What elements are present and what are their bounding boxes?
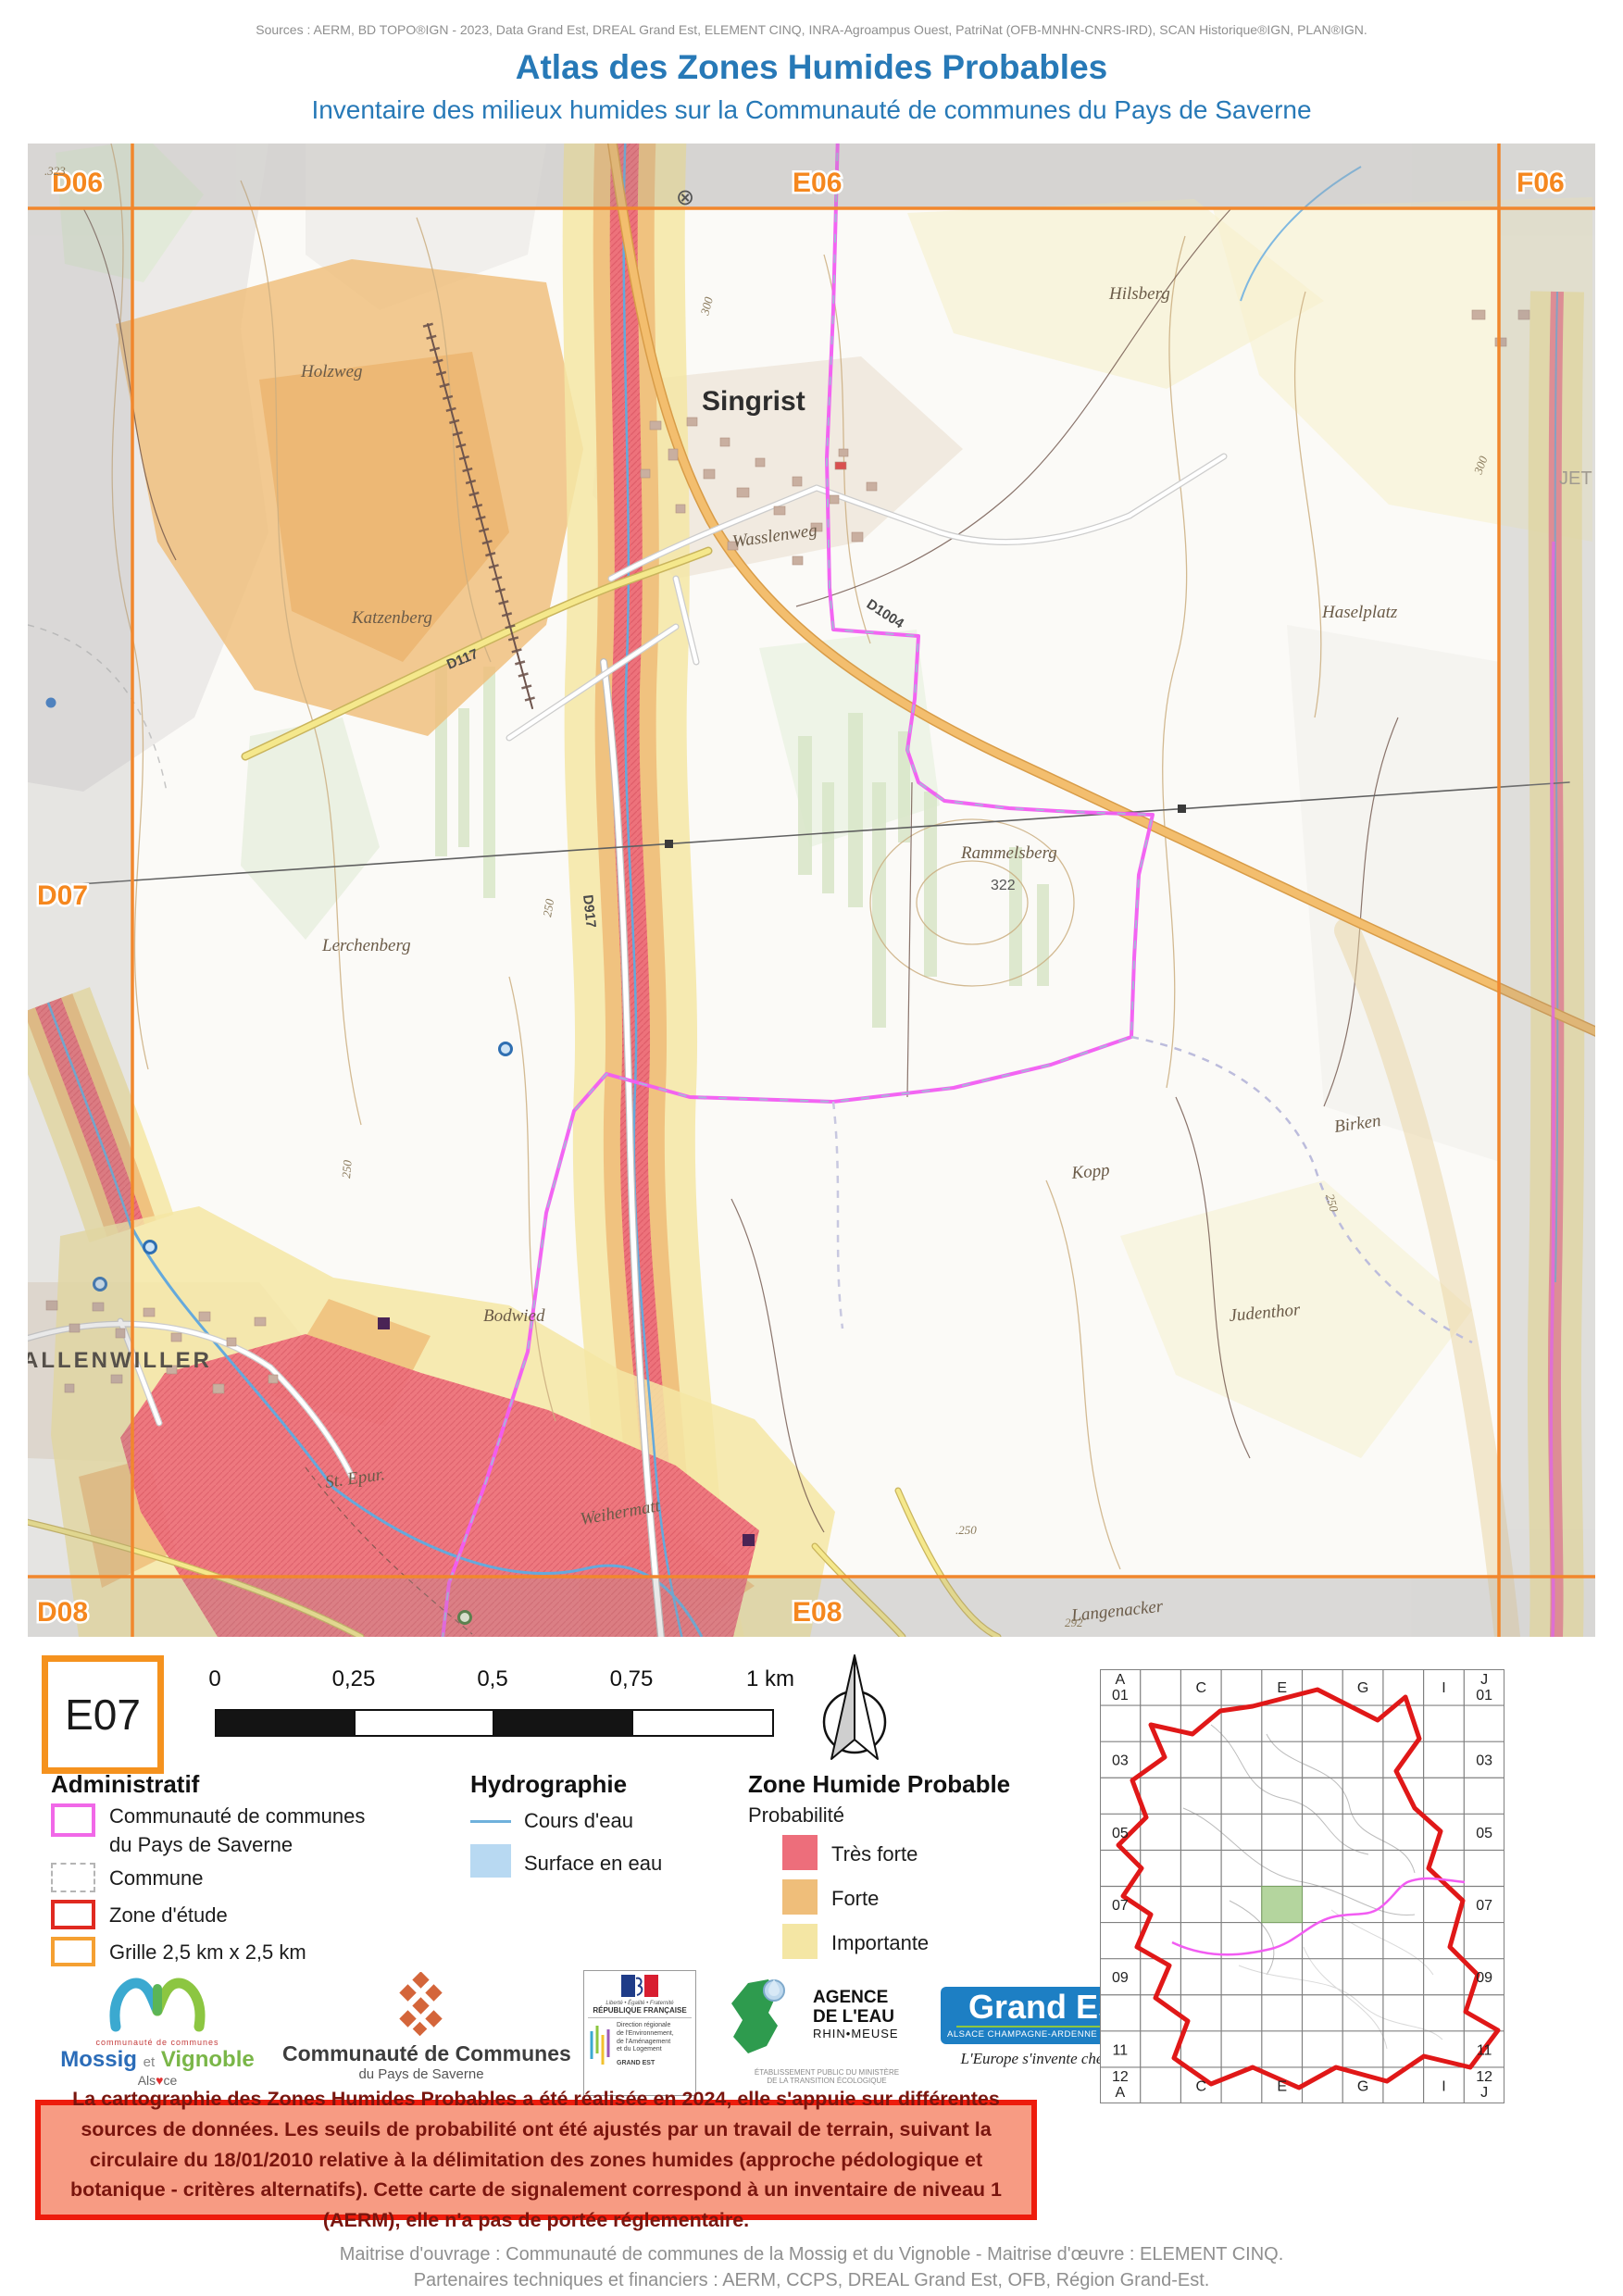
overview-grid-label: 03: [1112, 1753, 1129, 1769]
overview-grid-label: J: [1480, 2085, 1488, 2101]
overview-grid-label: 01: [1476, 1688, 1492, 1703]
dreal-republique: RÉPUBLIQUE FRANÇAISE: [584, 2006, 695, 2015]
overview-grid-label: 07: [1476, 1898, 1492, 1914]
overview-grid-label: A: [1116, 1672, 1126, 1688]
contour-250b: 250: [339, 1159, 355, 1179]
legend-swatch-surface-eau: [470, 1844, 511, 1878]
map-label-singrist: Singrist: [702, 386, 805, 417]
legend-swatch-tres-forte: [782, 1835, 818, 1870]
mossig-name2: Vignoble: [161, 2047, 255, 2072]
overview-map: A01J0112A12JCCEEGGII03030505070709091111: [1100, 1669, 1504, 2103]
scale-bar: 00,250,50,751 km: [215, 1666, 817, 1741]
logo-ccps: Communauté de Communes du Pays de Savern…: [282, 1972, 560, 2082]
mill-icon: ⊗: [676, 185, 694, 210]
legend-label-surface-eau: Surface en eau: [524, 1852, 662, 1876]
overview-grid-label: C: [1195, 1680, 1206, 1696]
grid-label-e06: E06: [793, 168, 842, 198]
overview-grid-label: I: [1442, 1680, 1445, 1696]
grid-label-d08: D08: [37, 1597, 88, 1628]
map-label-hilsberg: Hilsberg: [1108, 284, 1170, 304]
overview-grid-label: 09: [1476, 1970, 1492, 1986]
contour-292: 292: [1065, 1616, 1083, 1629]
aerm-line1: AGENCE: [813, 1989, 899, 2008]
overview-grid-label: E: [1277, 1680, 1287, 1696]
grid-label-d07: D07: [37, 880, 88, 911]
overview-grid-label: J: [1480, 1672, 1488, 1688]
aerm-sub1: ÉTABLISSEMENT PUBLIC DU MINISTÈRE: [720, 2068, 933, 2077]
dreal-dir4: et du Logement: [617, 2046, 674, 2054]
overview-grid-label: 12: [1112, 2069, 1129, 2085]
legend-hydro-title: Hydrographie: [470, 1770, 627, 1799]
overview-grid-label: E: [1277, 2078, 1287, 2094]
logo-mossig-vignoble: communauté de communes Mossig et Vignobl…: [56, 1976, 259, 2088]
legend-label-forte: Forte: [831, 1887, 879, 1911]
map-label-rammelsberg: Rammelsberg: [960, 843, 1057, 863]
legend-label-commune: Commune: [109, 1866, 203, 1890]
overview-current-cell: [1262, 1887, 1303, 1923]
legend-admin-title: Administratif: [51, 1770, 199, 1799]
sources-line: Sources : AERM, BD TOPO®IGN - 2023, Data…: [0, 22, 1623, 37]
grid-reference-box: E07: [42, 1655, 164, 1774]
overview-grid-label: 03: [1476, 1753, 1492, 1769]
dreal-dir3: de l'Aménagement: [617, 2039, 674, 2047]
legend-swatch-zone-etude: [51, 1900, 95, 1929]
page-title: Atlas des Zones Humides Probables: [0, 48, 1623, 87]
overview-grid-label: 07: [1112, 1898, 1129, 1914]
map-label-bodwied: Bodwied: [483, 1306, 545, 1326]
mossig-name1: Mossig: [60, 2047, 137, 2072]
footer-line2: Partenaires techniques et financiers : A…: [0, 2270, 1623, 2291]
overview-grid-label: 12: [1476, 2069, 1492, 2085]
map-label-kopp: Kopp: [1070, 1160, 1111, 1183]
aerm-line3: RHIN•MEUSE: [813, 2028, 899, 2040]
dreal-dir1: Direction régionale: [617, 2022, 674, 2030]
scale-segment: [217, 1711, 356, 1735]
legend-label-probabilite: Probabilité: [748, 1803, 844, 1828]
warning-box: La cartographie des Zones Humides Probab…: [35, 2100, 1037, 2220]
legend-label-cc: Communauté de communes du Pays de Savern…: [109, 1802, 365, 1859]
legend-label-tres-forte: Très forte: [831, 1842, 918, 1866]
aerm-line2: DE L'EAU: [813, 2008, 899, 2028]
grid-label-e08: E08: [793, 1597, 842, 1628]
overview-grid-label: I: [1442, 2078, 1445, 2094]
elev-323: .323: [44, 164, 66, 178]
overview-grid-label: 11: [1113, 2042, 1129, 2058]
overview-grid-label: C: [1195, 2078, 1206, 2094]
map-label-allenwiller: ALLENWILLER: [28, 1348, 212, 1373]
scale-segment: [356, 1711, 494, 1735]
map-canvas: D06 E06 F06 D07 D08 E08 .323 ⊗ Holzweg S…: [28, 143, 1595, 1637]
legend-zhp-title: Zone Humide Probable: [748, 1770, 1010, 1799]
dreal-dir2: de l'Environnement,: [617, 2030, 674, 2039]
legend-swatch-commune: [51, 1863, 95, 1892]
contour-250d: .250: [955, 1523, 977, 1537]
legend-label-grille: Grille 2,5 km x 2,5 km: [109, 1940, 306, 1965]
legend-swatch-cc: [51, 1803, 95, 1837]
scale-tick-label: 0,25: [332, 1666, 376, 1692]
overview-grid-label: 05: [1112, 1826, 1129, 1841]
mossig-cc-text: communauté de communes: [56, 2038, 259, 2047]
scale-tick-label: 0,5: [477, 1666, 507, 1692]
legend-label-cc-line1: Communauté de communes: [109, 1802, 365, 1830]
scale-tick-label: 0,75: [610, 1666, 654, 1692]
scale-segment: [494, 1711, 633, 1735]
map-label-haselplatz: Haselplatz: [1321, 603, 1398, 622]
map-label-jet: JET: [1559, 468, 1592, 489]
footer-line1: Maitrise d'ouvrage : Communauté de commu…: [0, 2244, 1623, 2265]
legend-swatch-grille: [51, 1937, 95, 1966]
page-subtitle: Inventaire des milieux humides sur la Co…: [0, 95, 1623, 125]
legend-label-zone-etude: Zone d'étude: [109, 1903, 228, 1928]
warning-text: La cartographie des Zones Humides Probab…: [41, 2078, 1031, 2240]
legend-swatch-importante: [782, 1924, 818, 1959]
map-label-holzweg: Holzweg: [300, 362, 363, 381]
ccps-logo-icon: [389, 1972, 454, 2037]
legend-label-importante: Importante: [831, 1931, 929, 1955]
ccps-name: Communauté de Communes: [282, 2041, 560, 2066]
north-arrow-icon: [811, 1650, 899, 1779]
grid-label-f06: F06: [1517, 168, 1565, 198]
scale-tick-label: 0: [208, 1666, 220, 1692]
french-flag-icon: [619, 1975, 660, 1999]
scale-segment: [633, 1711, 772, 1735]
logo-dreal: Liberté • Égalité • Fraternité RÉPUBLIQU…: [583, 1970, 696, 2096]
elev-322: 322: [991, 878, 1016, 893]
map-label-katzenberg: Katzenberg: [351, 608, 432, 628]
overview-grid-label: 05: [1476, 1826, 1492, 1841]
scale-bar-segments: [215, 1709, 774, 1737]
overview-grid-label: G: [1357, 2078, 1368, 2094]
mossig-name: Mossig et Vignoble: [56, 2047, 259, 2073]
legend-label-cc-line2: du Pays de Saverne: [109, 1830, 365, 1859]
overview-grid-label: 01: [1112, 1688, 1129, 1703]
main-map: D06 E06 F06 D07 D08 E08 .323 ⊗ Holzweg S…: [28, 143, 1595, 1637]
overview-grid-label: 11: [1477, 2042, 1492, 2058]
scale-tick-label: 1 km: [746, 1666, 794, 1692]
legend-swatch-cours-eau: [470, 1820, 511, 1823]
mossig-et: et: [144, 2054, 156, 2070]
overview-grid-label: 09: [1112, 1970, 1129, 1986]
dreal-strokes-icon: [588, 2022, 614, 2070]
overview-grid-label: G: [1357, 1680, 1368, 1696]
mossig-logo-icon: [106, 1976, 208, 2033]
legend-label-cours-eau: Cours d'eau: [524, 1809, 633, 1833]
map-label-lerchenberg: Lerchenberg: [321, 936, 411, 955]
legend-swatch-forte: [782, 1879, 818, 1915]
aerm-name: AGENCE DE L'EAU RHIN•MEUSE: [813, 1989, 899, 2040]
overview-grid-label: A: [1116, 2085, 1126, 2101]
dreal-region: GRAND EST: [617, 2060, 674, 2068]
aerm-logo-icon: [720, 1972, 813, 2065]
